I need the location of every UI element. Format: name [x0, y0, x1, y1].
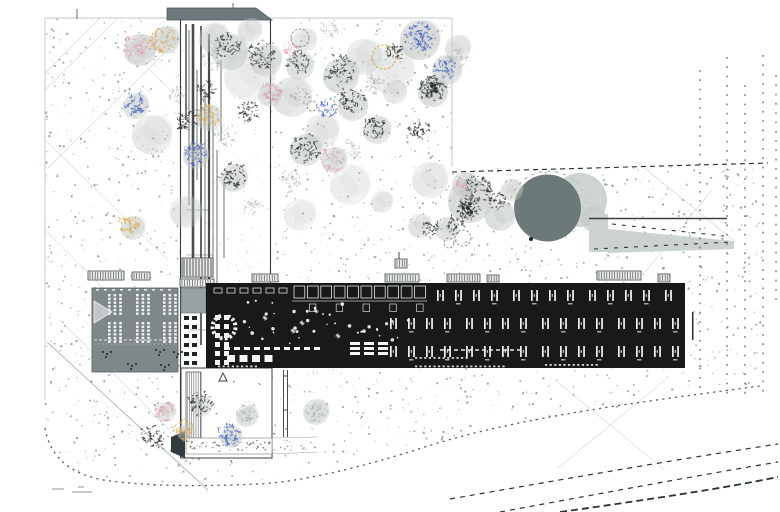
- vegetation-layer: [118, 18, 523, 448]
- buildings-layer: [88, 252, 694, 372]
- site-plan-svg: [0, 0, 780, 512]
- plaza: [509, 171, 734, 253]
- site-plan-canvas: Architectural site plan: [0, 0, 780, 512]
